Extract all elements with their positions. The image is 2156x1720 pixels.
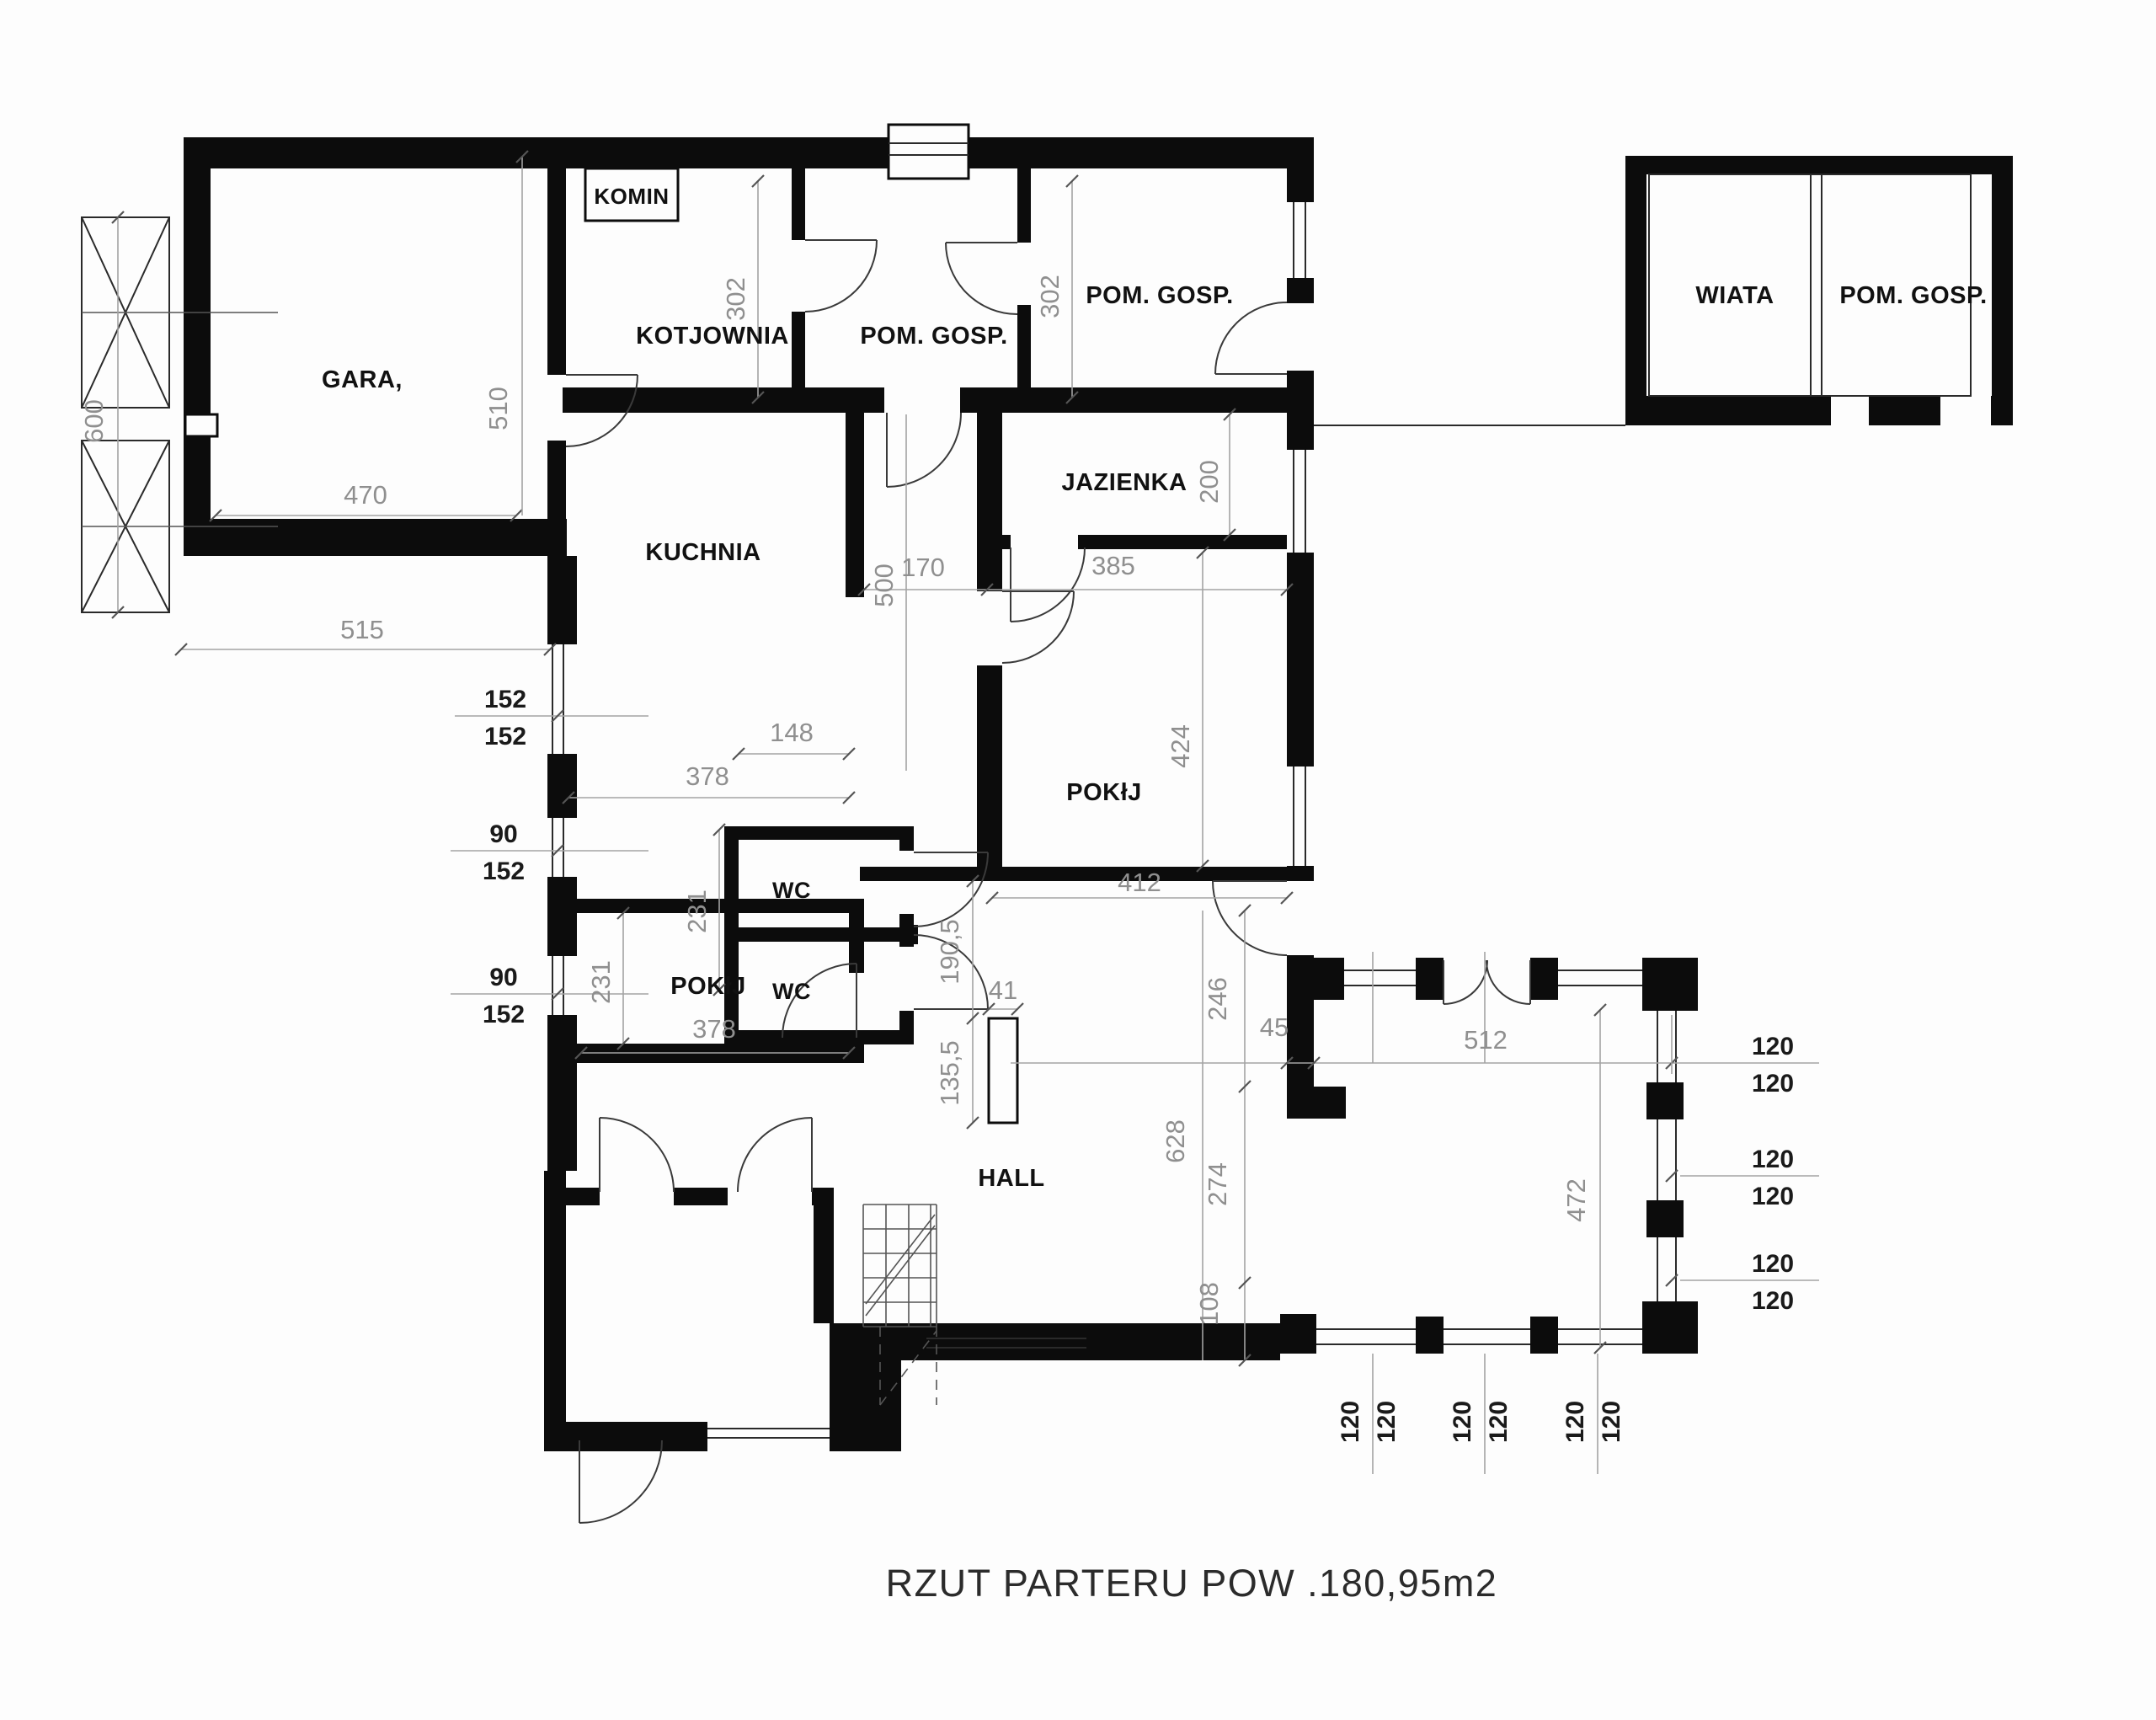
dim-152-den: 152 [483, 857, 525, 885]
terrace-column-bottom-1 [1416, 1317, 1444, 1354]
wall-wc-left [724, 826, 739, 1044]
wall-garage-right-upper [547, 168, 566, 375]
door-arc-hall-balcony [1213, 881, 1287, 955]
wall-wc-right-a [899, 826, 914, 851]
terrace-column-bottom-2 [1530, 1317, 1558, 1354]
dim-148: 148 [770, 718, 814, 747]
wall-divider-pomgosp-b [1017, 305, 1031, 387]
dim-120: 120 [1752, 1183, 1794, 1210]
wall-divider-kotlownia-a [792, 168, 805, 240]
dim-90-num: 90 [489, 964, 517, 991]
dim-152-den: 152 [484, 723, 526, 750]
wall-wc-bottom [724, 1030, 914, 1044]
dim-470: 470 [344, 480, 387, 510]
dim-120: 120 [1752, 1146, 1794, 1173]
door-arc-kotlownia-pom1 [805, 240, 877, 312]
wall-bottom-block [830, 1323, 901, 1451]
terrace-corner-top-right [1642, 958, 1698, 1011]
wall-vestdoor-a [566, 1188, 600, 1205]
dim-231-a: 231 [682, 889, 712, 933]
dim-378-a: 378 [686, 761, 729, 791]
dim-628: 628 [1161, 1119, 1190, 1163]
room-label-pom-gosp-1: POM. GOSP. [860, 323, 1007, 350]
dim-510: 510 [483, 387, 513, 430]
dim-515: 515 [340, 615, 384, 644]
dim-302-b: 302 [1035, 275, 1065, 318]
wall-divider-pomgosp-a [1017, 168, 1031, 243]
dim-135-5: 135,5 [935, 1040, 964, 1106]
dim-500: 500 [869, 564, 899, 607]
room-label-pom-gosp-wiata: POM. GOSP. [1839, 282, 1987, 309]
wall-vestdoor-b [812, 1188, 834, 1205]
wall-pokoj-lower-top [577, 899, 864, 913]
door-arc-pokoj-right [1002, 591, 1074, 663]
wall-hall-bottom-stub [1280, 1314, 1316, 1354]
wall-right-6 [1287, 866, 1314, 881]
room-label-kotlownia: KOTJOWNIA [636, 323, 789, 350]
door-arc-wc1 [914, 852, 988, 927]
wiata-wall-bottom-c [1991, 396, 2013, 425]
dim-90-num: 90 [489, 820, 517, 848]
wall-toprow-bottom-left [563, 387, 884, 413]
wall-divider-kotlownia-b [792, 312, 805, 387]
wall-right-2 [1287, 278, 1314, 303]
door-arc-vestibule-right [738, 1118, 812, 1192]
room-label-kuchnia: KUCHNIA [645, 539, 760, 566]
dim-512: 512 [1464, 1025, 1508, 1055]
dim-200: 200 [1194, 460, 1224, 504]
wall-left-seg3 [547, 877, 577, 956]
wall-vestdoor-post [674, 1188, 728, 1205]
dim-600: 600 [79, 399, 109, 443]
room-label-wiata: WIATA [1695, 282, 1774, 309]
dim-41: 41 [989, 975, 1017, 1005]
dim-120: 120 [1485, 1401, 1513, 1443]
terrace-column-top-1 [1416, 958, 1444, 1000]
wall-right-4 [1287, 425, 1314, 450]
wall-kuchnia-nook [846, 413, 864, 597]
terrace-stub-top-left [1314, 958, 1344, 1000]
terrace-column-top-2 [1530, 958, 1558, 1000]
room-label-pom-gosp-2: POM. GOSP. [1086, 282, 1233, 309]
wall-top [184, 137, 1314, 168]
dim-120: 120 [1449, 1401, 1476, 1443]
door-arc-terrace-left [1444, 960, 1487, 1004]
door-arc-pom1-pom2 [946, 243, 1017, 314]
wall-toprow-bottom-right [960, 387, 1314, 413]
wiata-wall-bottom-a [1625, 396, 1831, 425]
wall-left-seg1 [547, 556, 577, 644]
garage-gate-post [185, 414, 217, 436]
dim-412: 412 [1118, 868, 1161, 897]
wiata-wall-top [1625, 156, 2013, 174]
wall-jazienka-bottom-a [1002, 535, 1011, 549]
dim-45: 45 [1260, 1012, 1289, 1042]
dim-385: 385 [1091, 551, 1135, 580]
terrace-column-right-2 [1646, 1200, 1684, 1237]
dim-120: 120 [1561, 1401, 1589, 1443]
dim-120: 120 [1752, 1070, 1794, 1098]
dim-472: 472 [1561, 1178, 1591, 1222]
hall-pillar [989, 1018, 1017, 1123]
wall-garage-left [184, 168, 211, 556]
wall-garage-bottom [184, 519, 567, 556]
room-label-hall: HALL [978, 1165, 1044, 1192]
room-label-wc-1: WC [772, 878, 811, 903]
terrace-corner-bottom-right [1642, 1301, 1698, 1354]
wall-wc-mid [739, 927, 899, 942]
floor-plan-sheet: 600 470 510 515 302 302 500 148 378 231 … [0, 0, 2156, 1720]
wall-left-seg2 [547, 754, 577, 818]
dim-190-5: 190,5 [935, 919, 964, 985]
wall-vestibule-bottom-a [544, 1422, 707, 1451]
dim-120: 120 [1373, 1401, 1401, 1443]
dim-152-den: 152 [483, 1001, 525, 1028]
dim-378-b: 378 [692, 1014, 736, 1044]
door-arc-vestibule-left [600, 1118, 674, 1192]
wall-hall-bottom [901, 1323, 1280, 1360]
door-arc-pom2-exterior [1215, 302, 1287, 374]
dim-120: 120 [1598, 1401, 1625, 1443]
room-label-garage: GARA, [322, 366, 403, 393]
door-arc-pom1-kuchnia [887, 413, 961, 487]
dim-170: 170 [901, 553, 945, 582]
room-label-jazienka: JAZIENKA [1061, 469, 1187, 496]
wall-wc-top [739, 826, 899, 840]
wall-vestibule-left [544, 1171, 566, 1451]
wall-right-3 [1287, 371, 1314, 425]
wall-corridor-a [977, 413, 1002, 591]
dim-152-num: 152 [484, 686, 526, 713]
wall-garage-right-lower [547, 441, 566, 519]
dim-246: 246 [1203, 977, 1232, 1021]
room-label-komin: KOMIN [594, 184, 669, 209]
dim-120: 120 [1752, 1033, 1794, 1060]
room-label-pokoj-right: POKłJ [1066, 779, 1142, 806]
dim-120: 120 [1752, 1250, 1794, 1278]
door-arc-terrace-right [1486, 960, 1530, 1004]
wall-right-1 [1287, 137, 1314, 202]
terrace-column-right-1 [1646, 1082, 1684, 1119]
wall-hall-top [860, 867, 1287, 881]
stairs-arrow [866, 1215, 935, 1304]
dim-274: 274 [1203, 1162, 1232, 1206]
room-label-wc-2: WC [772, 979, 811, 1004]
drawing-title: RZUT PARTERU POW .180,95m2 [886, 1562, 1498, 1605]
wall-left-seg4 [547, 1015, 577, 1171]
wiata-wall-bottom-b [1869, 396, 1940, 425]
dim-302-a: 302 [721, 277, 750, 321]
wiata-wall-left [1625, 174, 1646, 425]
wall-right-stub-45 [1287, 1087, 1346, 1119]
door-arc-jazienka [1011, 548, 1085, 622]
floor-plan-drawing: 600 470 510 515 302 302 500 148 378 231 … [0, 0, 2156, 1720]
wiata-wall-right [1992, 174, 2013, 425]
dim-231-b: 231 [586, 960, 616, 1004]
dim-108: 108 [1194, 1282, 1224, 1326]
wall-jazienka-bottom-b [1078, 535, 1287, 549]
door-arc-entrance [579, 1440, 662, 1523]
wall-corridor-b [977, 665, 1002, 867]
dim-120: 120 [1752, 1287, 1794, 1315]
chimney-box [889, 125, 969, 179]
room-label-pokoj-lower: POKłJ [670, 973, 746, 1000]
dim-424: 424 [1166, 724, 1195, 768]
wall-vestibule-right [814, 1205, 834, 1323]
dim-120: 120 [1337, 1401, 1364, 1443]
